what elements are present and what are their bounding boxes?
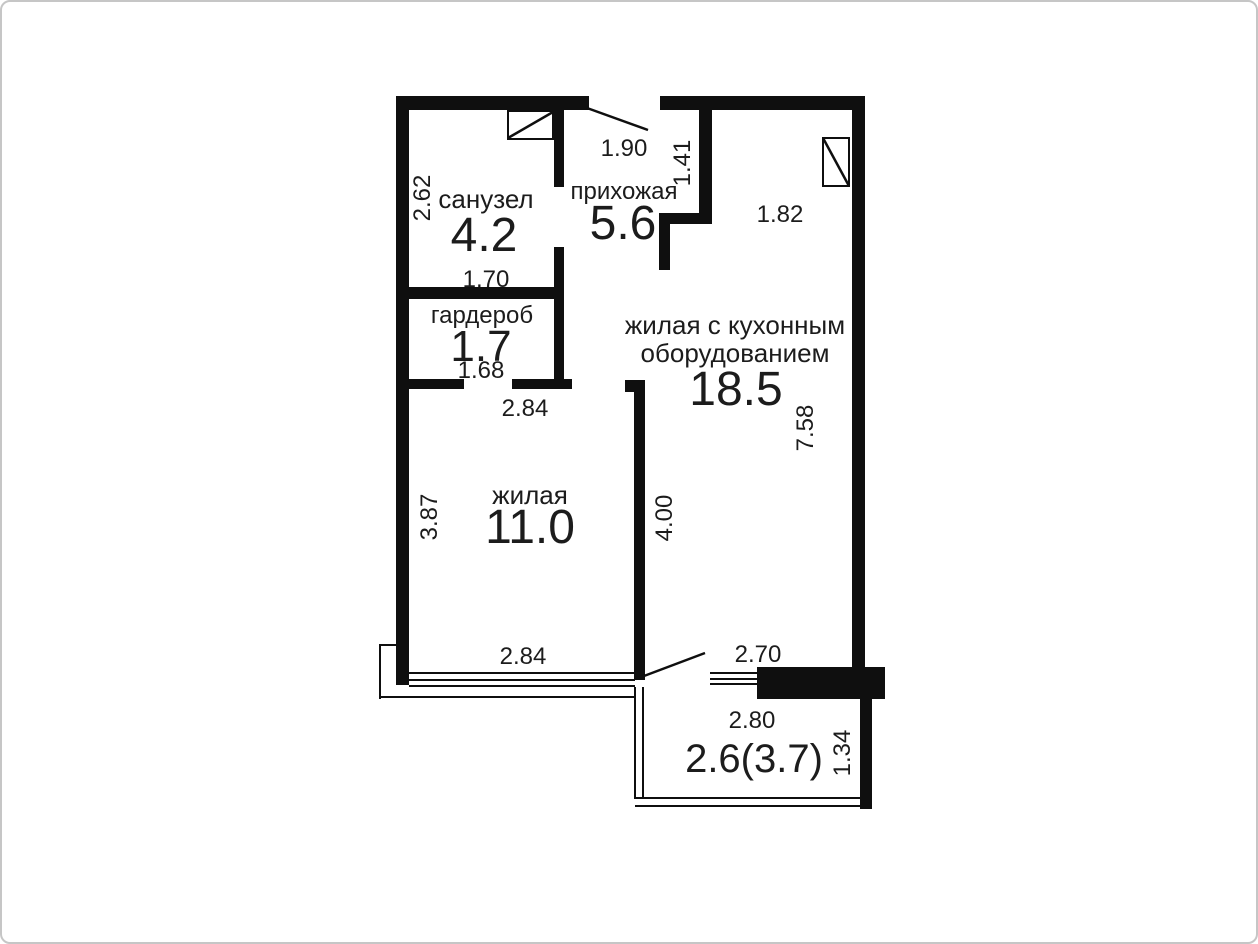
wall-hall-right-upper	[699, 110, 712, 215]
wall-left-outer	[396, 96, 409, 685]
wall-partition-vertical	[634, 380, 645, 680]
dim-entry-width: 1.90	[601, 137, 648, 161]
wall-hall-right-jog	[659, 213, 712, 224]
window-living-room-glass-line	[409, 679, 635, 681]
balcony-door-swing-line	[636, 653, 705, 679]
dim-living-height: 3.87	[418, 494, 442, 541]
balcony-left-line-inner	[642, 687, 644, 799]
wall-bottom-right-block	[757, 667, 885, 699]
facade-ledge-bottom-line	[379, 696, 636, 698]
dim-balcony-opening: 2.70	[735, 643, 782, 667]
room-area-hallway: 5.6	[590, 200, 657, 248]
window-living-room	[409, 672, 635, 687]
wall-right-outer	[852, 96, 865, 669]
dim-window-width: 2.84	[500, 645, 547, 669]
bathroom-door-leaf-box	[507, 110, 554, 140]
wall-hall-right-lower	[659, 224, 670, 270]
room-area-balcony: 2.6(3.7)	[685, 739, 823, 779]
window-balcony-side	[710, 672, 759, 685]
balcony-bottom-line-inner	[635, 797, 861, 799]
room-label-kitchen-living-line1: жилая с кухонным	[625, 312, 845, 338]
dim-bathroom-width: 1.70	[463, 268, 510, 292]
dim-living-width-top: 2.84	[502, 397, 549, 421]
wall-balcony-right	[860, 699, 872, 809]
dim-kitchen-height: 7.58	[794, 405, 818, 452]
vent-shaft-icon	[822, 137, 850, 187]
wall-bathroom-hall-lower	[554, 247, 564, 379]
room-area-bathroom: 4.2	[451, 212, 518, 260]
wall-top-right-segment	[660, 96, 865, 110]
dim-bathroom-height: 2.62	[411, 175, 435, 222]
wall-bathroom-hall-upper	[554, 110, 564, 187]
room-area-living: 11.0	[485, 504, 575, 552]
facade-ledge-left-line	[379, 644, 381, 699]
dim-partition-height: 4.00	[653, 495, 677, 542]
wall-wardrobe-bottom-left	[409, 379, 464, 389]
wall-wardrobe-bottom-right	[512, 379, 572, 389]
window-balcony-glass-line	[710, 678, 759, 680]
dim-hall-wall: 1.41	[671, 140, 695, 187]
room-area-kitchen-living: 18.5	[689, 366, 782, 414]
dim-wardrobe-width: 1.68	[458, 359, 505, 383]
entry-door-swing-line	[587, 108, 648, 130]
dim-kitchen-top: 1.82	[757, 203, 804, 227]
dim-balcony-depth: 1.34	[831, 730, 855, 777]
facade-ledge-top-line	[379, 644, 397, 646]
dim-balcony-width: 2.80	[729, 709, 776, 733]
wall-top-left-segment	[396, 96, 589, 110]
floor-plan-canvas: санузел 4.2 прихожая 5.6 гардероб 1.7 жи…	[0, 0, 1258, 944]
balcony-left-line-outer	[634, 687, 636, 799]
balcony-bottom-line-outer	[635, 805, 862, 807]
